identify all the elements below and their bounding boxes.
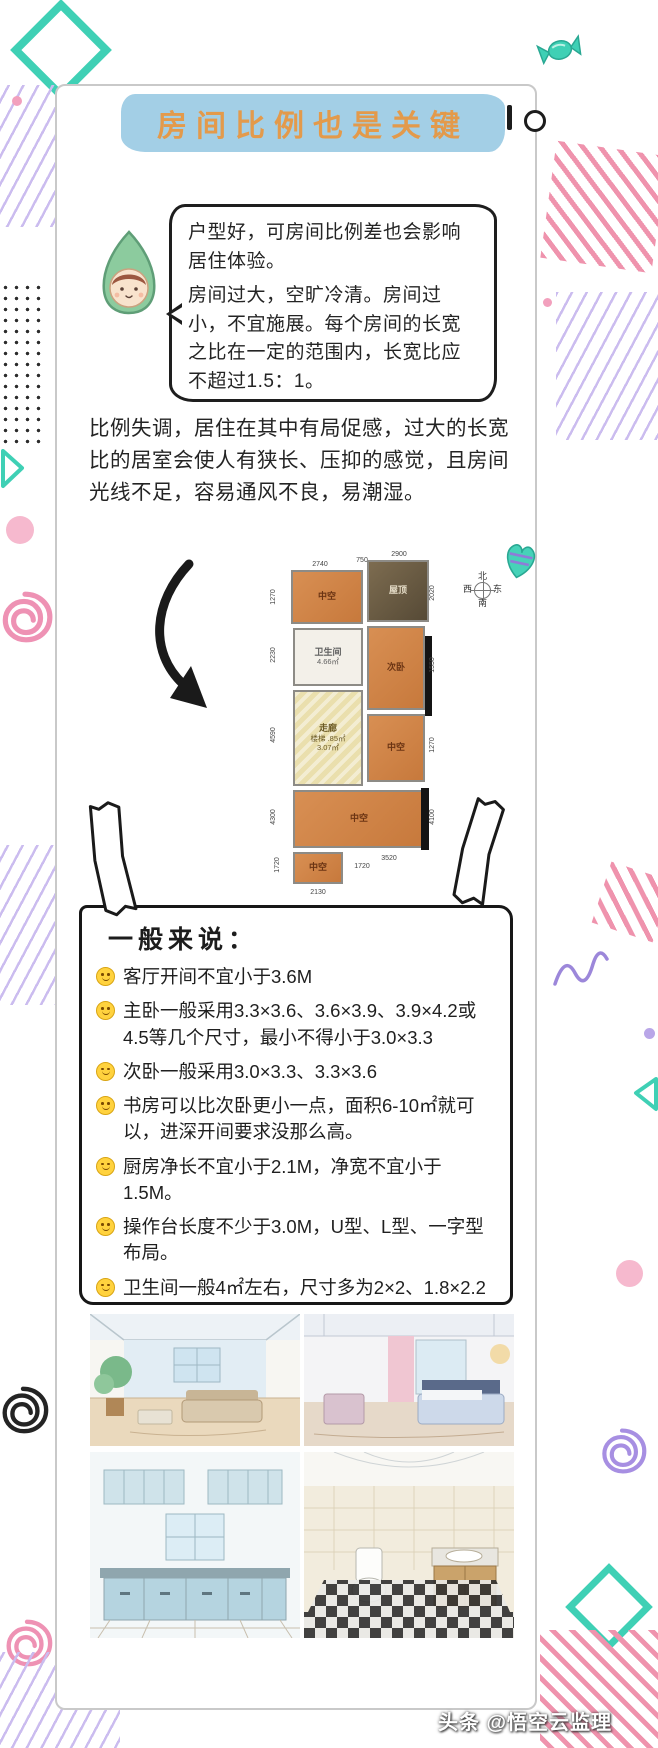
body-paragraph: 比例失调，居住在其中有局促感，过大的长宽比的居室会使人有狭长、压抑的感觉，且房间… — [89, 413, 515, 509]
floorplan-room-corridor: 走廊 楼梯 .85㎡ 3.07㎡ — [293, 690, 363, 786]
watermark: 头条 @悟空云监理 — [438, 1706, 612, 1735]
guideline-text: 主卧一般采用3.3×3.6、3.6×3.9、3.9×4.2或4.5等几个尺寸，最… — [123, 998, 500, 1051]
dimension-label: 4300 — [269, 799, 279, 835]
room-label: 中空 — [350, 814, 368, 824]
purple-stripes-leftmid — [0, 845, 58, 1005]
smiley-icon — [96, 1278, 115, 1297]
down-arrow-sketch-icon — [137, 556, 247, 721]
dimension-label: 1270 — [428, 727, 438, 763]
dimension-label: 2130 — [293, 888, 343, 898]
guideline-item: 卫生间一般4㎡左右，尺寸多为2×2、1.8×2.2 — [96, 1275, 500, 1301]
guideline-item: 次卧一般采用3.0×3.3、3.3×3.6 — [96, 1059, 500, 1085]
room-area: 3.07㎡ — [317, 743, 339, 752]
room-label: 楼梯 .85㎡ — [310, 734, 345, 743]
guideline-item: 书房可以比次卧更小一点，面积6-10㎡就可以，进深开间要求没那么高。 — [96, 1093, 500, 1146]
content-card: 房间比例也是关键 户型好，可房间比例差也会影响居住体验。 房间过大，空旷冷清。房… — [55, 84, 537, 1710]
room-label: 次卧 — [387, 663, 405, 673]
black-dots-pattern — [0, 282, 46, 450]
bubble-paragraph-1: 户型好，可房间比例差也会影响居住体验。 — [188, 219, 480, 276]
room-label: 中空 — [387, 743, 405, 753]
guidelines-list: 客厅开间不宜小于3.6M 主卧一般采用3.3×3.6、3.6×3.9、3.9×4… — [82, 964, 510, 1301]
pink-striped-square-right — [540, 141, 658, 273]
dimension-label: 2900 — [369, 550, 429, 560]
room-label: 走廊 — [319, 724, 337, 734]
dimension-label: 1270 — [269, 579, 279, 615]
dimension-label: 4590 — [269, 717, 279, 753]
kitchen-sketch — [90, 1452, 300, 1638]
guidelines-title: 一般来说： — [108, 920, 510, 956]
room-label: 中空 — [309, 863, 327, 873]
bubble-paragraph-2: 房间过大，空旷冷清。房间过小，不宜施展。每个房间的长宽之比在一定的范围内，长宽比… — [188, 282, 480, 396]
dimension-label: 1720 — [273, 847, 283, 883]
room-area: 4.66㎡ — [317, 657, 339, 666]
guideline-text: 客厅开间不宜小于3.6M — [123, 964, 500, 990]
guideline-text: 次卧一般采用3.0×3.3、3.3×3.6 — [123, 1059, 500, 1085]
dimension-label: 4100 — [428, 799, 438, 835]
teal-triangle-right-icon — [632, 1076, 658, 1112]
room-label: 中空 — [318, 592, 336, 602]
dimension-label: 2020 — [428, 575, 438, 611]
dimension-label: 1550 — [428, 647, 438, 683]
dimension-label: 2740 — [291, 560, 349, 570]
guideline-item: 主卧一般采用3.3×3.6、3.6×3.9、3.9×4.2或4.5等几个尺寸，最… — [96, 998, 500, 1051]
room-label: 屋顶 — [389, 586, 407, 596]
teal-triangle-icon — [0, 448, 26, 490]
bathroom-sketch — [304, 1452, 514, 1638]
purple-squiggle-icon — [550, 942, 612, 992]
compass-ring — [474, 582, 491, 599]
poster-canvas: 房间比例也是关键 户型好，可房间比例差也会影响居住体验。 房间过大，空旷冷清。房… — [0, 0, 658, 1748]
floorplan-room-void-topleft: 中空 — [291, 570, 363, 624]
guideline-text: 书房可以比次卧更小一点，面积6-10㎡就可以，进深开间要求没那么高。 — [123, 1093, 500, 1146]
candy-icon — [532, 27, 587, 74]
smiley-icon — [96, 1217, 115, 1236]
pink-circle-icon — [6, 516, 34, 544]
purple-stripes-right — [556, 292, 658, 440]
guideline-text: 操作台长度不少于3.0M，U型、L型、一字型布局。 — [123, 1214, 500, 1267]
smiley-icon — [96, 1001, 115, 1020]
pink-dot-icon — [543, 298, 552, 307]
dimension-label: 2230 — [269, 637, 279, 673]
pink-striped-square-small — [592, 862, 658, 943]
speech-bubble: 户型好，可房间比例差也会影响居住体验。 房间过大，空旷冷清。房间过小，不宜施展。… — [169, 204, 497, 402]
guideline-text: 厨房净长不宜小于2.1M，净宽不宜小于1.5M。 — [123, 1154, 500, 1207]
guideline-item: 厨房净长不宜小于2.1M，净宽不宜小于1.5M。 — [96, 1154, 500, 1207]
floorplan-room-void-small: 中空 — [293, 852, 343, 884]
purple-spiral-icon — [596, 1424, 648, 1478]
guidelines-box: 一般来说： 客厅开间不宜小于3.6M 主卧一般采用3.3×3.6、3.6×3.9… — [79, 905, 513, 1305]
black-spiral-lollipop-icon — [0, 1380, 50, 1440]
floorplan-room-void-middle: 中空 — [367, 714, 425, 782]
smiley-icon — [96, 1157, 115, 1176]
floorplan-room-roof: 屋顶 — [367, 560, 429, 622]
circle-decoration — [524, 110, 546, 132]
living-room-sketch-2 — [304, 1314, 514, 1446]
page-title: 房间比例也是关键 — [157, 101, 469, 145]
purple-dot-icon — [644, 1028, 655, 1039]
vertical-bar-decoration — [507, 105, 512, 130]
floorplan-room-bathroom: 卫生间 4.66㎡ — [293, 628, 363, 686]
floorplan-room-second-bedroom: 次卧 — [367, 626, 425, 710]
floorplan-room-void-large: 中空 — [293, 790, 425, 848]
pink-dot-icon — [12, 96, 22, 106]
pink-circle-right-icon — [616, 1260, 643, 1287]
smiley-icon — [96, 1096, 115, 1115]
smiley-icon — [96, 967, 115, 986]
smiley-icon — [96, 1062, 115, 1081]
compass-icon: 北 西 东 南 — [463, 572, 502, 609]
pink-spiral-lollipop-icon — [0, 586, 54, 648]
guideline-item: 操作台长度不少于3.0M，U型、L型、一字型布局。 — [96, 1214, 500, 1267]
title-banner: 房间比例也是关键 — [121, 94, 505, 152]
dimension-label: 1720 — [345, 862, 379, 872]
guideline-text: 卫生间一般4㎡左右，尺寸多为2×2、1.8×2.2 — [123, 1275, 500, 1301]
living-room-sketch-1 — [90, 1314, 300, 1446]
room-label: 卫生间 — [314, 648, 341, 658]
guideline-item: 客厅开间不宜小于3.6M — [96, 964, 500, 990]
